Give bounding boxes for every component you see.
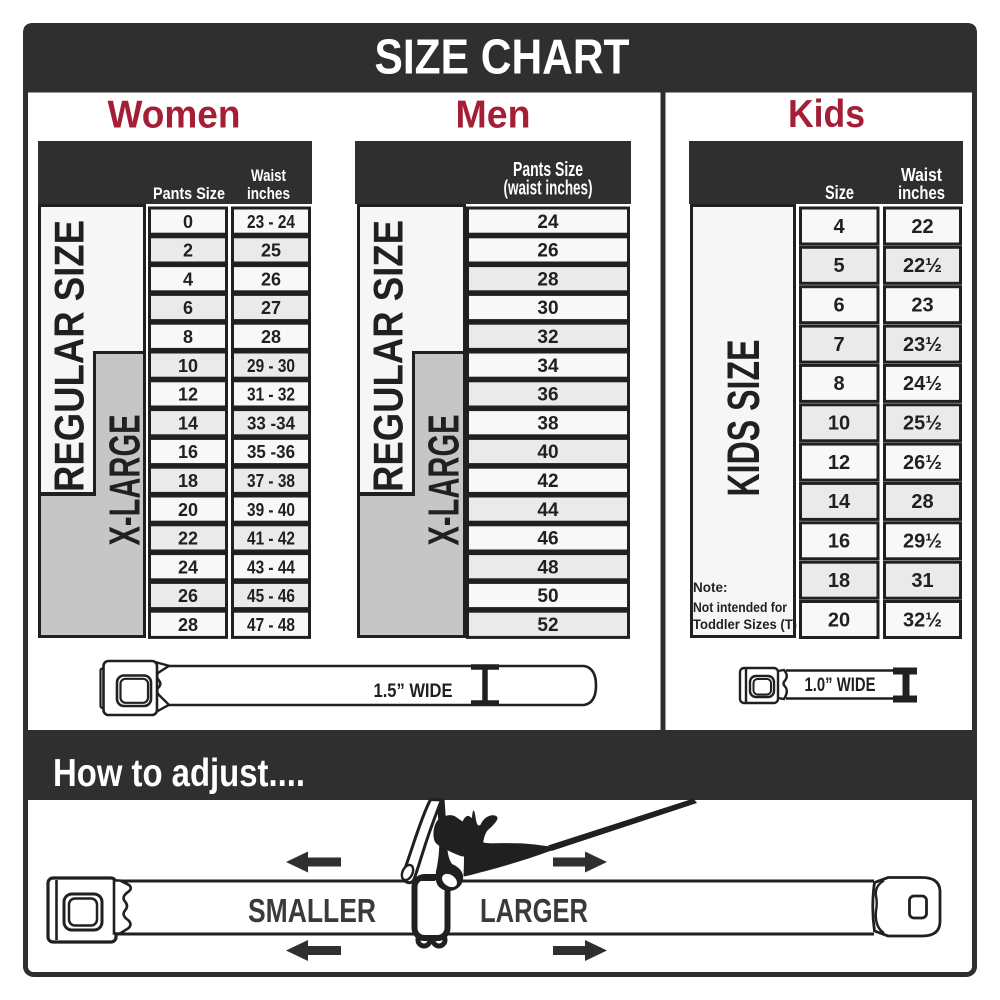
svg-text:28: 28 — [911, 491, 933, 513]
svg-text:39 - 40: 39 - 40 — [247, 500, 295, 520]
svg-text:10: 10 — [828, 413, 850, 435]
svg-text:2: 2 — [183, 241, 193, 261]
svg-text:35 -36: 35 -36 — [247, 442, 295, 462]
svg-text:47 - 48: 47 - 48 — [247, 615, 295, 635]
svg-text:26: 26 — [178, 586, 198, 606]
svg-text:25½: 25½ — [903, 413, 942, 435]
svg-text:27: 27 — [261, 298, 281, 318]
svg-text:16: 16 — [178, 442, 198, 462]
svg-text:22½: 22½ — [903, 255, 942, 277]
svg-text:38: 38 — [537, 413, 558, 434]
svg-text:33 -34: 33 -34 — [247, 413, 295, 433]
svg-text:REGULAR SIZE: REGULAR SIZE — [365, 220, 412, 492]
svg-text:23½: 23½ — [903, 334, 942, 356]
svg-text:28: 28 — [178, 615, 198, 635]
svg-text:44: 44 — [537, 500, 559, 521]
svg-text:22: 22 — [911, 216, 933, 238]
svg-text:0: 0 — [183, 212, 193, 232]
svg-text:43 - 44: 43 - 44 — [247, 557, 295, 577]
svg-text:10: 10 — [178, 356, 198, 376]
svg-text:24½: 24½ — [903, 373, 942, 395]
svg-text:37 - 38: 37 - 38 — [247, 471, 295, 491]
svg-text:X-LARGE: X-LARGE — [101, 415, 150, 546]
svg-text:12: 12 — [828, 452, 850, 474]
svg-text:16: 16 — [828, 531, 850, 553]
svg-text:46: 46 — [537, 529, 558, 550]
svg-text:Size: Size — [825, 183, 854, 204]
svg-text:40: 40 — [537, 442, 558, 463]
svg-text:20: 20 — [178, 500, 198, 520]
svg-text:12: 12 — [178, 385, 198, 405]
svg-text:Women: Women — [108, 94, 241, 137]
svg-text:23: 23 — [911, 295, 933, 317]
svg-text:30: 30 — [537, 298, 558, 319]
svg-text:KIDS SIZE: KIDS SIZE — [718, 340, 769, 497]
svg-text:Kids: Kids — [788, 93, 865, 136]
svg-text:32: 32 — [537, 327, 558, 348]
svg-text:6: 6 — [833, 295, 844, 317]
svg-text:50: 50 — [537, 586, 558, 607]
svg-text:8: 8 — [833, 373, 844, 395]
svg-text:How to adjust....: How to adjust.... — [53, 752, 305, 795]
svg-text:5: 5 — [833, 255, 844, 277]
svg-text:7: 7 — [833, 334, 844, 356]
svg-text:28: 28 — [537, 269, 558, 290]
svg-text:42: 42 — [537, 471, 558, 492]
svg-text:26: 26 — [537, 241, 558, 262]
svg-text:24: 24 — [178, 557, 198, 577]
svg-text:1.5” WIDE: 1.5” WIDE — [374, 681, 453, 702]
svg-text:8: 8 — [183, 327, 193, 347]
svg-text:52: 52 — [537, 615, 558, 636]
svg-text:1.0” WIDE: 1.0” WIDE — [805, 675, 876, 696]
svg-text:28: 28 — [261, 327, 281, 347]
svg-text:6: 6 — [183, 298, 193, 318]
svg-text:4: 4 — [183, 269, 193, 289]
svg-text:32½: 32½ — [903, 609, 942, 631]
svg-text:31: 31 — [911, 570, 933, 592]
svg-text:26: 26 — [261, 269, 281, 289]
svg-text:36: 36 — [537, 385, 558, 406]
svg-text:22: 22 — [178, 529, 198, 549]
svg-text:29 - 30: 29 - 30 — [247, 356, 295, 376]
svg-text:41 - 42: 41 - 42 — [247, 529, 295, 549]
svg-text:34: 34 — [537, 356, 559, 377]
svg-text:23 - 24: 23 - 24 — [247, 212, 295, 232]
svg-text:X-LARGE: X-LARGE — [420, 415, 469, 546]
svg-text:SMALLER: SMALLER — [248, 892, 376, 929]
svg-text:26½: 26½ — [903, 452, 942, 474]
svg-text:SIZE CHART: SIZE CHART — [375, 31, 630, 85]
svg-text:LARGER: LARGER — [480, 892, 588, 929]
svg-text:Waistinches: Waistinches — [247, 166, 290, 203]
svg-text:4: 4 — [833, 216, 845, 238]
svg-text:45 - 46: 45 - 46 — [247, 586, 295, 606]
svg-text:20: 20 — [828, 609, 850, 631]
svg-text:18: 18 — [828, 570, 850, 592]
svg-text:14: 14 — [828, 491, 851, 513]
svg-text:25: 25 — [261, 241, 281, 261]
svg-text:18: 18 — [178, 471, 198, 491]
svg-text:REGULAR SIZE: REGULAR SIZE — [46, 220, 93, 492]
svg-text:Pants Size(waist inches): Pants Size(waist inches) — [504, 159, 593, 200]
svg-text:Waistinches: Waistinches — [898, 165, 945, 203]
svg-text:Pants Size: Pants Size — [153, 184, 225, 203]
svg-text:48: 48 — [537, 557, 558, 578]
svg-text:Men: Men — [456, 94, 531, 137]
svg-text:14: 14 — [178, 413, 198, 433]
svg-text:24: 24 — [537, 212, 559, 233]
svg-text:31 - 32: 31 - 32 — [247, 385, 295, 405]
svg-text:29½: 29½ — [903, 531, 942, 553]
